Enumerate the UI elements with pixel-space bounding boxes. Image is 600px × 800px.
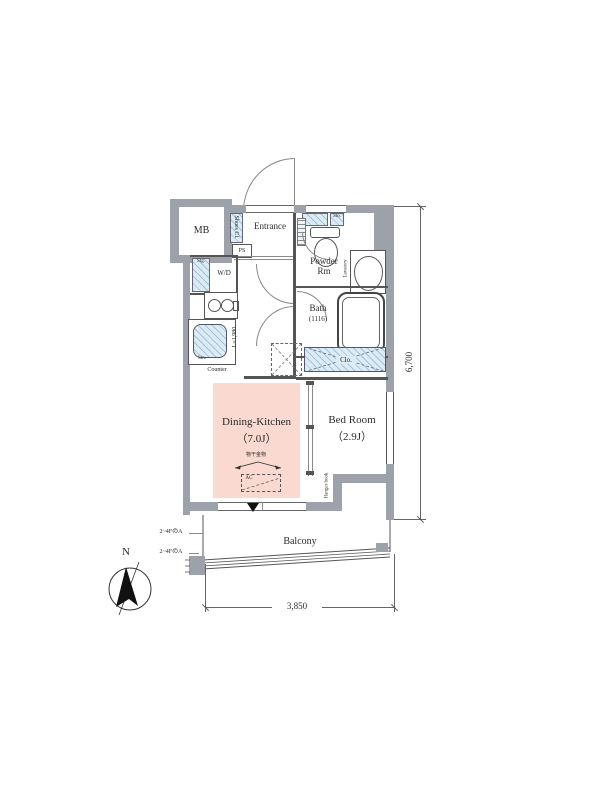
powder-line2: Rm (317, 266, 330, 276)
hanger-hook-label: Hanger hook (325, 468, 330, 504)
hall-door-arc-2 (256, 306, 294, 346)
bedroom-size: （2.9J） (314, 431, 390, 444)
wall-bottom-left (183, 502, 218, 511)
wd-wall-right (236, 255, 238, 295)
wd-label: W/D (212, 269, 236, 277)
dim-height-label: 6,700 (404, 341, 414, 383)
floor-note-2: 2~4FのA (152, 549, 190, 556)
ps-label: PS (233, 248, 251, 255)
bath-wall-top (293, 286, 388, 288)
powder-top-window (306, 205, 346, 213)
refrigerator-cross (272, 344, 301, 375)
balcony-window-mullion (262, 502, 263, 511)
closet: Clo. (304, 347, 386, 372)
wall-right (386, 205, 394, 520)
wall-mb-top (170, 199, 232, 207)
powder-line1: Powder (310, 256, 338, 266)
bathtub (337, 292, 385, 354)
wd-storage-label: Stg. (192, 259, 210, 265)
wall-bedroom-step-h (333, 474, 388, 483)
shelf-label: Sto. (329, 214, 345, 220)
shoes-closet-label: Shoes Cl. (233, 209, 239, 245)
refrigerator-space (271, 343, 302, 376)
partition-slide-tick2 (306, 425, 314, 429)
mb-room: MB (179, 207, 224, 255)
entrance-door-arc (243, 158, 295, 211)
sink-label: Sin. (193, 356, 211, 362)
lavatory-label: Lavatory (344, 249, 349, 289)
balcony-structure (185, 512, 400, 582)
compass-icon (100, 558, 160, 620)
bath-size: (1116) (298, 315, 338, 323)
dk-size: （7.0J） (205, 433, 308, 446)
ac-label: AC (243, 476, 255, 482)
stove (204, 292, 238, 319)
entrance-step-line (234, 256, 294, 257)
wall-mb-left (170, 199, 179, 263)
entrance-door-leaf (294, 158, 295, 211)
bathtub-inner (342, 297, 380, 349)
bedroom-wall-top (296, 377, 388, 380)
floor-note-1: 2~4FのA (152, 529, 190, 536)
balcony-access-marker (247, 503, 259, 512)
wd-wall-top (190, 255, 238, 257)
wall-left (183, 263, 190, 515)
kitchen-length-label: L=1,980 (232, 317, 238, 357)
partition-slide-tick1 (306, 381, 314, 385)
laundry-hardware-label: 物干金物 (236, 453, 276, 459)
dim-right-line (420, 206, 421, 520)
bedroom-label: Bed Room (314, 414, 390, 427)
floor-note-2-leader (189, 553, 199, 554)
counter-label: Counter (198, 367, 236, 374)
dk-label: Dining-Kitchen (205, 416, 308, 429)
entrance-door-opening (246, 205, 294, 213)
dim-bottom-ext-right (394, 554, 395, 612)
compass-north-label: N (114, 546, 138, 559)
floor-note-1-leader (189, 533, 203, 534)
stove-control (233, 301, 239, 311)
powder-label: Powder Rm (298, 256, 350, 277)
hall-door-arc-1 (256, 264, 294, 304)
closet-label: Clo. (336, 356, 356, 364)
dim-bottom-ext-left (205, 564, 206, 612)
floor-plan: MB Entrance Shoes Cl. PS Stg. W/D Sin. C… (0, 0, 600, 800)
entrance-label: Entrance (244, 221, 296, 231)
kitchen-sink (193, 324, 227, 358)
partition-slide-tick3 (306, 471, 314, 475)
ac-unit: AC (241, 474, 281, 492)
bath-label: Bath (298, 303, 338, 313)
laundry-hardware-arrows (230, 460, 286, 472)
dim-width-label: 3,850 (272, 601, 322, 611)
bedroom-side-window (386, 392, 394, 464)
entrance-step-line2 (234, 259, 294, 260)
burner-1 (208, 299, 221, 312)
mb-label: MB (194, 225, 210, 237)
